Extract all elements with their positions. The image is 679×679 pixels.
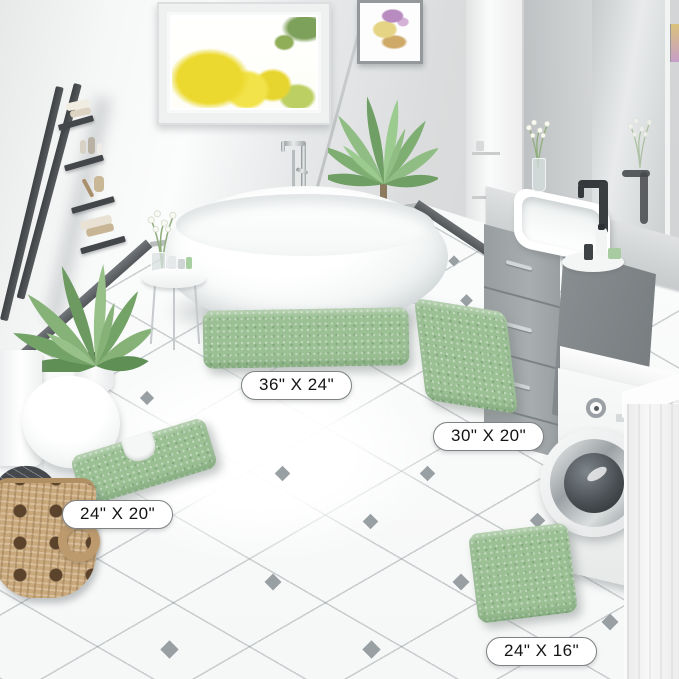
sink-faucet-spout bbox=[578, 185, 584, 198]
toiletry-jar bbox=[178, 259, 185, 269]
size-label-36x24: 36" X 24" bbox=[241, 371, 352, 400]
side-table bbox=[142, 268, 206, 288]
drawer-handle bbox=[506, 260, 532, 271]
bathtub-rim bbox=[176, 194, 434, 256]
vanity-vase bbox=[532, 158, 546, 192]
laundry-cabinet bbox=[624, 404, 679, 679]
cabinet-item bbox=[476, 141, 484, 151]
soap-dispenser bbox=[596, 228, 607, 256]
soap-pump bbox=[598, 224, 605, 230]
window-frame-inner bbox=[167, 12, 321, 113]
table-leg bbox=[173, 284, 175, 350]
window-glass-trees bbox=[172, 17, 316, 108]
bathtub bbox=[162, 186, 448, 328]
bathroom-product-photo: 36" X 24" 30" X 20" 24" X 20" 24" X 16" bbox=[0, 0, 679, 679]
dark-bottle bbox=[584, 244, 593, 260]
drawer-handle bbox=[506, 322, 532, 333]
bottle bbox=[80, 140, 86, 154]
bottle bbox=[88, 137, 95, 154]
wall-art-partial bbox=[669, 24, 679, 62]
wall-art-floral bbox=[364, 7, 416, 57]
wall-art-frame bbox=[357, 0, 423, 64]
mirror-reflection-flowers bbox=[620, 112, 660, 170]
toiletry-bottle bbox=[186, 257, 192, 269]
size-label-24x16: 24" X 16" bbox=[486, 637, 597, 666]
bottle bbox=[97, 143, 102, 155]
bath-rug-36x24 bbox=[203, 307, 410, 369]
mirror-reflection-faucet bbox=[640, 172, 648, 224]
washer-dial-marker bbox=[594, 406, 599, 411]
window bbox=[157, 2, 331, 125]
green-jar bbox=[608, 248, 621, 259]
cabinet-shelf bbox=[472, 152, 500, 155]
washer-door-glass bbox=[564, 453, 624, 513]
size-label-24x20: 24" X 20" bbox=[62, 500, 173, 529]
bath-rug-30x20 bbox=[414, 298, 518, 415]
bath-rug-24x16 bbox=[468, 522, 578, 624]
washer-door-highlight bbox=[585, 464, 609, 484]
toiletry-bottle bbox=[168, 256, 176, 269]
jar bbox=[94, 176, 104, 192]
tub-faucet-tip bbox=[281, 141, 285, 152]
size-label-30x20: 30" X 20" bbox=[433, 422, 544, 451]
drawer-seam bbox=[484, 286, 560, 308]
